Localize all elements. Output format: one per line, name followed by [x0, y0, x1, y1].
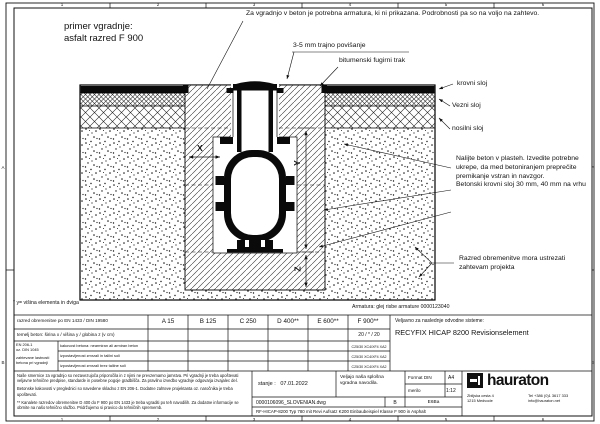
soil-bottom [185, 290, 325, 299]
systems-label: Veljavno za naslednje odvodne sisteme: [395, 318, 484, 324]
scale-label: merilo [408, 388, 421, 393]
ruler-col-2-bottom: 2 [148, 417, 168, 422]
load-class-note: Razred obremenitve mora ustrezati zahtev… [459, 255, 593, 273]
concrete-pour-note: Nalijte beton v plasteh. Izvedite potreb… [456, 155, 594, 190]
foundation-row-label: temelj beton: širina x / višina y / glob… [17, 332, 145, 337]
technical-drawing-canvas [0, 0, 600, 424]
class-e600: E 600** [308, 318, 348, 325]
general-instructions: Veljajo naša splošna vgradna navodila. [340, 375, 400, 387]
example-title-line1: primer vgradnje: [64, 21, 133, 32]
ruler-col-6-top: 6 [533, 2, 553, 7]
dim-label-y: Y [292, 160, 302, 166]
pavement-right [319, 86, 434, 128]
bitumen-note: bitumenski fugirni trak [339, 57, 405, 66]
ruler-col-3-bottom: 3 [244, 417, 264, 422]
ruler-row-a-left: A [0, 165, 9, 170]
systems-value: RECYFIX HICAP 8200 Revisionselement [395, 328, 529, 337]
standard-note: zahtevane lastnosti betona pri vgradnji [16, 356, 56, 365]
format-label: Format DIN [408, 375, 432, 380]
state-label: stanje : [258, 381, 276, 387]
layer-label-top: krovni sloj [457, 80, 487, 89]
fine-print-notes: Naše smernice za vgradnjo so nezavezujoč… [17, 373, 249, 413]
foundation-f900-value: 20 / * / 20 [348, 332, 390, 338]
state-date: 07.01.2022 [280, 381, 308, 387]
filename: 0000106096_SLOVENIAN.dwg [256, 400, 326, 406]
scale-value: 1:12 [446, 388, 456, 394]
ruler-col-4-top: 4 [340, 2, 360, 7]
cover-plate [233, 84, 277, 91]
revision: B [385, 400, 405, 406]
format-value: A4 [448, 375, 454, 381]
address-line2: 1215 Medvode [467, 398, 494, 403]
address-block: Zbiljska cesta 4 1215 Medvode [467, 393, 494, 404]
ruler-row-a-right: A [587, 165, 599, 170]
standard-line2: oz. DIN 1045 [16, 348, 56, 353]
concrete-row2-f900: C25/30 XC4/XF4 XA2 [348, 355, 390, 359]
ruler-row-b-left: B [0, 360, 9, 365]
ruler-col-4-bottom: 4 [340, 417, 360, 422]
rise-note: 3-5 mm trajno povišanje [293, 42, 366, 51]
fine-print-p1: Naše smernice za vgradnjo so nezavezujoč… [17, 373, 249, 383]
drawing-sheet: primer vgradnje: asfalt razred F 900 Za … [0, 0, 600, 424]
class-f900: F 900** [348, 318, 388, 325]
rebar-note: Za vgradnjo v beton je potrebna armatura… [246, 10, 591, 19]
ruler-col-3-top: 3 [244, 2, 264, 7]
author-code: E6Ba [405, 400, 462, 405]
layer-label-base: nosilni sloj [452, 125, 483, 134]
channel-profile-inner [231, 157, 279, 235]
load-class-row-label: razred obremenitve po EN 1433 / DIN 1958… [17, 318, 145, 323]
concrete-row1-label: kakovost betona: nearmiran ali armiran b… [60, 344, 146, 349]
dim-label-x: X [197, 143, 203, 153]
ruler-col-6-bottom: 6 [533, 417, 553, 422]
hauraton-logo-icon [467, 373, 483, 388]
class-d400: D 400** [268, 318, 308, 325]
fine-print-p3: ** Kanalete razredov obremenitve D 400 d… [17, 400, 249, 410]
concrete-row2-label: izpostavljenost zmrzali in talilni soli [60, 354, 146, 359]
layer-label-binder: Vezni sloj [452, 102, 481, 111]
drawing-title: RF-HICAP-8200 Typ 780 mit Revi Aufsatz K… [256, 409, 460, 414]
dim-label-z: Z [293, 266, 303, 271]
concrete-row3-label: izpostavljenost zmrzali brez talilne sol… [60, 364, 146, 369]
email: info@hauraton.net [528, 398, 568, 403]
class-c250: C 250 [228, 318, 268, 325]
bitumen-joint-right [322, 85, 328, 93]
soil-right [325, 128, 434, 299]
fine-print-p2: Betonske kakovosti v preglednici so nave… [17, 386, 249, 396]
example-title-line2: asfalt razred F 900 [64, 33, 143, 44]
soil-left [81, 128, 185, 299]
rebar-reference: Armatura: glej risbe armature 0000123040 [352, 304, 449, 310]
ruler-col-2-top: 2 [148, 2, 168, 7]
ruler-col-5-bottom: 5 [436, 417, 456, 422]
contact-block: Tel +386 (0)1 3617 333 info@hauraton.net [528, 393, 568, 404]
ruler-col-1-bottom: 1 [52, 417, 72, 422]
class-b125: B 125 [188, 318, 228, 325]
pavement-left [81, 86, 187, 128]
concrete-row1-f900: C25/30 XC4/XF4 XA2 [348, 345, 390, 349]
state-row: stanje : 07.01.2022 [258, 381, 308, 387]
class-a15: A 15 [148, 318, 188, 325]
ruler-col-5-top: 5 [436, 2, 456, 7]
brand-wordmark: hauraton [487, 373, 549, 389]
ruler-row-b-right: B [587, 360, 599, 365]
ruler-col-1-top: 1 [52, 2, 72, 7]
height-footnote: * y= višina elementa in dviga [13, 300, 79, 306]
bitumen-joint-left [183, 85, 189, 93]
concrete-row3-f900: C25/30 XC4/XF4 XA2 [348, 365, 390, 369]
